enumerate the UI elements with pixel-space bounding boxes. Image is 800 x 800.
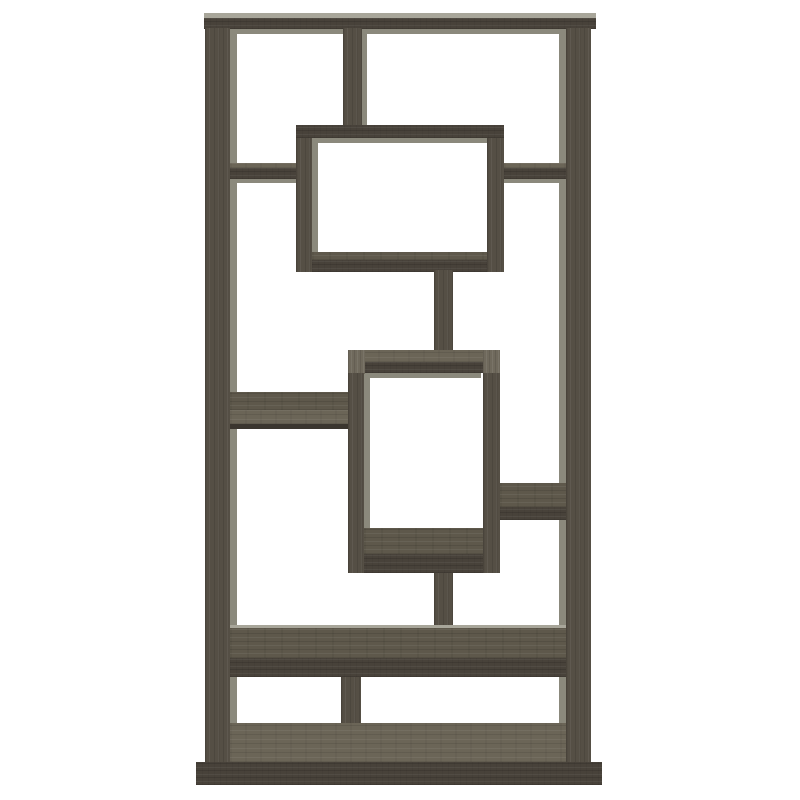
- box2-corner-cap-right: [483, 350, 500, 374]
- box2-right-side: [483, 373, 500, 573]
- bottom-floor-surface: [230, 723, 566, 762]
- box1-top: [296, 125, 504, 138]
- bookcase-product-image: [0, 0, 800, 800]
- base-plinth-front: [196, 762, 602, 785]
- mid-right-shelf-front: [500, 507, 566, 520]
- box2-bottom-surface: [364, 528, 483, 554]
- bottom-divider: [341, 677, 361, 723]
- box2-bottom-front: [348, 554, 500, 573]
- box1-right-side: [487, 138, 504, 272]
- box2-top-surface: [348, 350, 500, 362]
- box2-inner-left-edge: [364, 373, 370, 530]
- box1-inner-top-edge: [312, 138, 487, 143]
- box1-left-side: [296, 138, 312, 272]
- upper-right-shelf-under-edge: [504, 179, 566, 183]
- wide-shelf-top: [230, 628, 566, 658]
- mid-left-shelf-under-line: [230, 424, 348, 429]
- right-side-panel: [566, 28, 591, 765]
- top-bar-front: [204, 18, 596, 29]
- wide-shelf-front: [230, 658, 566, 677]
- mid-right-shelf-top: [500, 483, 566, 507]
- box1-inner-left-edge: [312, 138, 318, 256]
- box1-bottom-front: [312, 260, 487, 272]
- center-divider-back-edge: [362, 30, 367, 125]
- left-side-panel: [205, 28, 230, 765]
- upper-right-shelf-front: [504, 168, 566, 179]
- upper-left-shelf-front: [230, 168, 296, 179]
- upper-connector-post: [434, 270, 453, 350]
- upper-left-shelf-under-edge: [230, 179, 296, 183]
- box2-left-side: [348, 373, 364, 573]
- lower-connector-post: [434, 573, 453, 627]
- box2-corner-cap-left: [348, 350, 365, 374]
- box2-inner-top-edge: [364, 373, 481, 378]
- mid-left-shelf-top: [230, 392, 348, 410]
- box2-top-front: [348, 362, 500, 373]
- box1-bottom-surface: [312, 252, 487, 260]
- mid-left-shelf-front: [230, 410, 348, 424]
- center-divider: [343, 28, 362, 125]
